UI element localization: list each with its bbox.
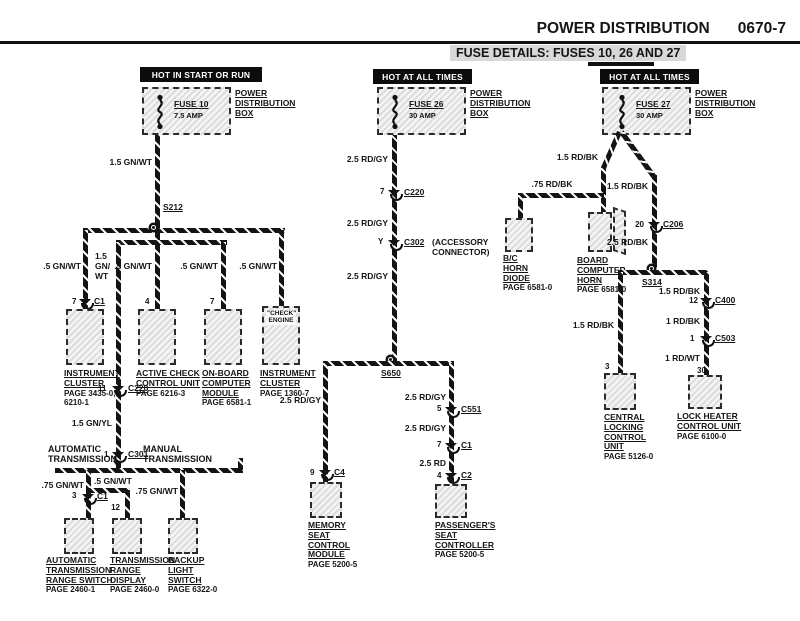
component-memory-seat-control-module — [310, 482, 342, 518]
fuse-27-box: FUSE 27 30 AMP — [602, 87, 691, 135]
banner-hot-in-start-or-run: HOT IN START OR RUN — [140, 67, 262, 82]
wire-step-to-range-display — [86, 488, 130, 493]
connector-c1-label: C1 — [94, 297, 105, 307]
component-label: CENTRALLOCKINGCONTROLUNIT PAGE 5126-0 — [604, 413, 653, 461]
wire-label: .75 GN/WT — [40, 481, 84, 491]
component-bc-horn-diode — [505, 218, 533, 252]
power-distribution-box-label-left: POWERDISTRIBUTIONBOX — [235, 89, 295, 118]
wire-to-instrument-cluster — [83, 230, 88, 310]
component-lock-heater-control-unit — [688, 375, 722, 409]
wire-label: 1.5 RD/BK — [554, 153, 598, 163]
connector-c1-label: C1 — [97, 492, 108, 502]
wire-to-lock-heater — [704, 272, 709, 375]
page-subtitle: FUSE DETAILS: FUSES 10, 26 AND 27 — [450, 45, 686, 61]
connector-arrow-icon — [82, 494, 94, 504]
connector-c206-label: C206 — [663, 220, 683, 230]
connector-c1-label: C1 — [461, 441, 472, 451]
component-label: TRANSMISSIONRANGEDISPLAY PAGE 2460-0 — [110, 556, 175, 594]
component-label: B/CHORNDIODE PAGE 6581-0 — [503, 254, 552, 292]
pin-number: 12 — [106, 503, 120, 512]
pin-letter: Y — [378, 237, 383, 246]
wire-to-passenger-seat — [449, 363, 454, 482]
fuse-27-label: FUSE 27 — [636, 100, 671, 110]
pin-number: 1 — [690, 334, 694, 343]
fuse-27-rating: 30 AMP — [636, 112, 663, 121]
connector-c220-label: C220 — [128, 384, 148, 394]
wire-label: 2.5 RD/GY — [402, 393, 446, 403]
connector-c220-label: C220 — [404, 188, 424, 198]
fuse-26-rating: 30 AMP — [409, 112, 436, 121]
wire-diode-rail — [518, 193, 604, 198]
wire-transmission-rail — [55, 468, 243, 473]
wire-label: .75 RD/BK — [524, 180, 580, 190]
wire-label: .5 GN/WT — [107, 262, 152, 272]
fuse-10-rating: 7.5 AMP — [174, 112, 203, 121]
pin-number: 20 — [626, 220, 644, 229]
connector-arrow-icon — [445, 443, 457, 453]
wire-to-central-locking — [618, 272, 623, 375]
header-rule — [0, 41, 800, 44]
connector-arrow-icon — [445, 473, 457, 483]
wire-label: 1.5 RD/BK — [604, 182, 648, 192]
subtitle-underbar — [588, 62, 654, 66]
wire-arrow-icon — [113, 461, 123, 468]
wire-label: 2.5 RD/GY — [344, 219, 388, 229]
wire-to-range-display — [125, 490, 130, 518]
pin-number: 12 — [680, 296, 698, 305]
wire-label: .75 GN/WT — [134, 487, 178, 497]
wire-label: 1.5 RD/BK — [570, 321, 614, 331]
pin-number: 4 — [437, 471, 441, 480]
wire-s650-rail — [323, 361, 454, 366]
wiring-diagram-page: POWER DISTRIBUTION 0670-7 FUSE DETAILS: … — [0, 0, 800, 621]
component-label: MEMORYSEATCONTROLMODULE PAGE 5200-5 — [308, 521, 357, 569]
horn-flap-icon — [613, 207, 626, 255]
fuse-26-box: FUSE 26 30 AMP — [377, 87, 466, 135]
banner-hot-at-all-times-right: HOT AT ALL TIMES — [600, 69, 699, 84]
check-engine-indicator: "CHECK"ENGINE — [266, 310, 296, 325]
splice-s650-label: S650 — [381, 369, 401, 379]
connector-c400-label: C400 — [715, 296, 735, 306]
connector-arrow-icon — [700, 298, 712, 308]
component-instrument-cluster — [66, 309, 104, 365]
banner-hot-at-all-times-middle: HOT AT ALL TIMES — [373, 69, 472, 84]
connector-arrow-icon — [79, 299, 91, 309]
connector-arrow-icon — [648, 222, 660, 232]
wire-s212-rail-lower — [116, 240, 227, 245]
connector-arrow-icon — [388, 240, 400, 250]
wire-to-instrument-cluster-2 — [279, 230, 284, 306]
connector-arrow-icon — [319, 470, 331, 480]
page-code: 0670-7 — [738, 20, 786, 38]
wire-label: .5 GN/WT — [36, 262, 81, 272]
component-instrument-cluster-check-engine: "CHECK"ENGINE — [262, 306, 300, 365]
power-distribution-box-label-middle: POWERDISTRIBUTIONBOX — [470, 89, 530, 118]
component-onboard-computer-module — [204, 309, 242, 365]
wire-label: .5 GN/WT — [94, 477, 132, 487]
wire-fuse27-right-leg — [619, 131, 657, 180]
pin-number: 3 — [72, 491, 76, 500]
wire-label: 2.5 RD — [410, 459, 446, 469]
pin-number: 7 — [72, 297, 76, 306]
wire-label: 2.5 RD/GY — [344, 272, 388, 282]
section-header-manual-transmission: MANUALTRANSMISSION — [143, 444, 212, 465]
pin-number: 11 — [98, 384, 106, 393]
connector-c551-label: C551 — [461, 405, 481, 415]
wire-label: 2.5 RD/GY — [402, 424, 446, 434]
component-transmission-range-display — [112, 518, 142, 554]
component-active-check-control-unit — [138, 309, 176, 365]
pin-number: 9 — [310, 468, 314, 477]
component-label: INSTRUMENTCLUSTER PAGE 1360-7 — [260, 369, 316, 398]
connector-arrow-icon — [445, 407, 457, 417]
wire-s314-rail — [618, 270, 709, 275]
component-passenger-seat-controller — [435, 484, 467, 518]
wire-to-onboard-computer — [221, 242, 226, 309]
page-header: POWER DISTRIBUTION 0670-7 — [537, 20, 786, 38]
component-label: AUTOMATICTRANSMISSIONRANGE SWITCH PAGE 2… — [46, 556, 113, 594]
accessory-connector-note: (ACCESSORYCONNECTOR) — [432, 238, 489, 258]
pin-number: 5 — [437, 404, 441, 413]
component-automatic-transmission-range-switch — [64, 518, 94, 554]
connector-arrow-icon — [388, 190, 400, 200]
wire-s212-rail-upper — [83, 228, 285, 233]
pin-number: 30 — [697, 366, 706, 375]
wire-label: .5 GN/WT — [232, 262, 277, 272]
connector-c503-label: C503 — [715, 334, 735, 344]
fuse-icon — [387, 94, 403, 130]
wire-label: 2.5 RD/GY — [344, 155, 388, 165]
wire-label: 1 RD/WT — [660, 354, 700, 364]
component-label: ON-BOARDCOMPUTERMODULE PAGE 6581-1 — [202, 369, 251, 407]
section-header-automatic-transmission: AUTOMATICTRANSMISSION — [48, 444, 117, 465]
wire-rail-hook — [238, 458, 243, 470]
wire-label: 1.5 GN/WT — [106, 158, 152, 168]
page-title: POWER DISTRIBUTION — [537, 20, 710, 38]
wire-label: 1.5 GN/YL — [66, 419, 112, 429]
pin-number: 7 — [380, 187, 384, 196]
connector-c4-label: C4 — [334, 468, 345, 478]
component-central-locking-control-unit — [604, 373, 636, 410]
wire-fuse10-to-s212 — [155, 135, 160, 309]
wire-label: 2.5 RD/GY — [277, 396, 321, 406]
component-label: BACKUPLIGHTSWITCH PAGE 6322-0 — [168, 556, 217, 594]
power-distribution-box-label-right: POWERDISTRIBUTIONBOX — [695, 89, 755, 118]
fuse-icon — [152, 94, 168, 130]
pin-number: 3 — [605, 362, 609, 371]
splice-s212-label: S212 — [163, 203, 183, 213]
fuse-10-label: FUSE 10 — [174, 100, 209, 110]
connector-arrow-icon — [112, 386, 124, 396]
connector-c302-label: C302 — [404, 238, 424, 248]
wire-label: 1 RD/BK — [660, 317, 700, 327]
component-label: PASSENGER'SSEATCONTROLLER PAGE 5200-5 — [435, 521, 495, 559]
pin-number: 7 — [437, 440, 441, 449]
connector-c2-label: C2 — [461, 471, 472, 481]
fuse-26-label: FUSE 26 — [409, 100, 444, 110]
component-backup-light-switch — [168, 518, 198, 554]
wire-to-diode — [518, 195, 523, 218]
splice-s212-node — [151, 225, 156, 230]
connector-arrow-icon — [700, 336, 712, 346]
wire-label: 2.5 RD/BK — [604, 238, 648, 248]
wire-to-backup-switch — [180, 470, 185, 518]
wire-fuse27-left-leg — [601, 131, 622, 170]
component-label: LOCK HEATERCONTROL UNIT PAGE 6100-0 — [677, 412, 741, 441]
pin-number: 7 — [210, 297, 214, 306]
wire-to-c220-c301 — [116, 242, 121, 468]
fuse-10-box: FUSE 10 7.5 AMP — [142, 87, 231, 135]
pin-number: 4 — [145, 297, 149, 306]
wire-to-memory-seat — [323, 363, 328, 482]
fuse-icon — [614, 94, 630, 130]
wire-label: .5 GN/WT — [173, 262, 218, 272]
